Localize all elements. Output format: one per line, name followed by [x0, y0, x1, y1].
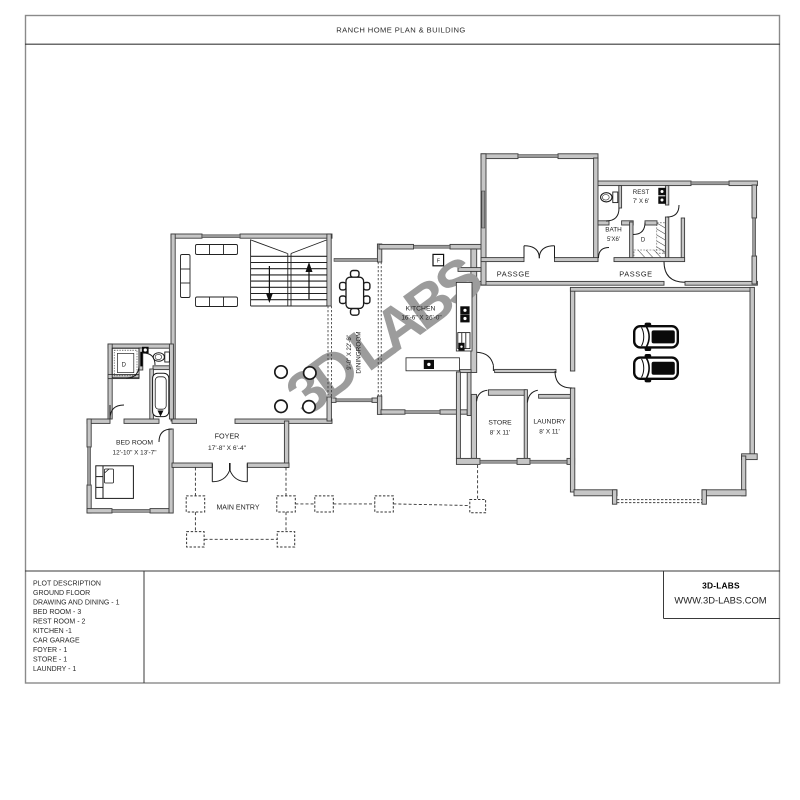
svg-text:8' X 11': 8' X 11' [539, 429, 559, 436]
svg-text:BATH: BATH [605, 227, 622, 234]
svg-text:DRAWING AND DINING - 1: DRAWING AND DINING - 1 [33, 600, 120, 607]
svg-text:PASSGE: PASSGE [497, 270, 530, 279]
svg-text:F: F [437, 259, 440, 265]
svg-text:GROUND FLOOR: GROUND FLOOR [33, 590, 90, 597]
svg-text:16'-6" X 26'-0": 16'-6" X 26'-0" [401, 315, 441, 322]
svg-text:LAUNDRY - 1: LAUNDRY - 1 [33, 666, 76, 673]
svg-text:KITCHEN -1: KITCHEN -1 [33, 628, 72, 635]
svg-text:LAUNDRY: LAUNDRY [533, 419, 566, 426]
svg-text:5'X6': 5'X6' [607, 237, 620, 243]
svg-text:8' X 11': 8' X 11' [490, 430, 510, 437]
svg-text:17'-8" X 6'-4": 17'-8" X 6'-4" [208, 445, 247, 452]
svg-text:BED ROOM - 3: BED ROOM - 3 [33, 609, 81, 616]
svg-text:9'-0" X 22'-6": 9'-0" X 22'-6" [347, 335, 353, 370]
svg-text:7' X 6': 7' X 6' [633, 199, 649, 205]
svg-text:FOYER: FOYER [215, 432, 240, 441]
svg-text:REST: REST [633, 189, 650, 196]
svg-text:WWW.3D-LABS.COM: WWW.3D-LABS.COM [674, 595, 766, 606]
svg-text:PLOT DESCRIPTION: PLOT DESCRIPTION [33, 581, 101, 588]
svg-text:DININGROOM: DININGROOM [356, 331, 363, 373]
svg-text:BED ROOM: BED ROOM [116, 440, 153, 447]
svg-text:D: D [641, 238, 646, 244]
svg-text:MAIN ENTRY: MAIN ENTRY [216, 505, 259, 512]
svg-text:CAR GARAGE: CAR GARAGE [33, 638, 80, 645]
svg-text:FOYER - 1: FOYER - 1 [33, 647, 67, 654]
svg-text:D: D [122, 363, 127, 369]
svg-text:KITCHEN: KITCHEN [406, 306, 436, 313]
svg-text:STORE: STORE [488, 420, 512, 427]
svg-text:PASSGE: PASSGE [619, 270, 652, 279]
svg-text:3D-LABS: 3D-LABS [702, 581, 740, 591]
svg-text:REST ROOM - 2: REST ROOM - 2 [33, 619, 85, 626]
svg-text:12'-10" X 13'-7": 12'-10" X 13'-7" [113, 450, 157, 457]
svg-text:RANCH HOME PLAN & BUILDING: RANCH HOME PLAN & BUILDING [336, 26, 465, 35]
svg-text:STORE - 1: STORE - 1 [33, 657, 67, 664]
